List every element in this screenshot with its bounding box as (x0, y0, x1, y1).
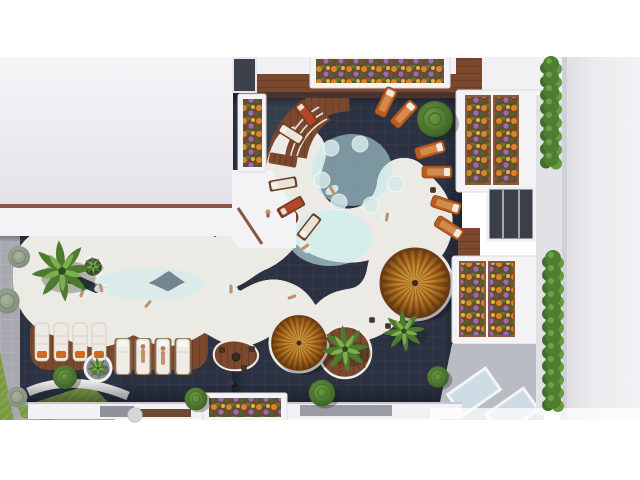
bush-sage (8, 246, 30, 268)
stone (128, 408, 142, 422)
left-fascia (0, 208, 240, 236)
planter-right-1a (466, 96, 490, 184)
right-wall (560, 57, 640, 433)
table-round (232, 353, 240, 361)
planter-flowers (316, 59, 444, 83)
lounger-white (35, 323, 49, 361)
stool-pool (323, 140, 339, 156)
lounger-orange (422, 166, 452, 178)
stool-dark (386, 324, 391, 329)
stool-dark (242, 366, 247, 371)
planter-flowers (243, 99, 262, 167)
stool-pool (314, 172, 330, 188)
top-margin (0, 0, 640, 57)
planter-flowers (209, 398, 281, 417)
person-lying (141, 344, 146, 363)
right-window (488, 188, 534, 240)
stool-pool (388, 176, 404, 192)
stool-dark (431, 188, 436, 193)
parapet-block-2 (300, 405, 392, 416)
left-window (233, 58, 256, 92)
stool-dark (220, 348, 225, 353)
planter-right-1b (494, 96, 518, 184)
planter-right-2a (460, 262, 485, 336)
person-lying (161, 346, 166, 365)
north-soffit (232, 92, 472, 98)
water-highlight-west (95, 268, 205, 300)
planter-left-edge (238, 94, 266, 172)
lounger-white (73, 323, 87, 361)
stool-pool (363, 197, 379, 213)
parapet-wood (137, 409, 191, 417)
lounger-tan (115, 338, 132, 375)
planter-right-2b (489, 262, 514, 336)
north-edge (232, 54, 472, 98)
stool-dark (250, 347, 255, 352)
aerial-resort-pool-render (0, 0, 640, 480)
render-canvas (0, 0, 640, 480)
left-roof (0, 56, 233, 207)
planter-north (310, 54, 450, 88)
bottom-fade (430, 408, 640, 434)
planter-south (203, 393, 287, 421)
umbrella (272, 316, 326, 370)
bush-sage (7, 387, 28, 408)
lounger-white (54, 323, 68, 361)
lounger-tan (175, 338, 192, 375)
stool-pool (331, 194, 347, 210)
left-building (0, 56, 296, 248)
umbrella (381, 249, 449, 317)
lounger-white (92, 323, 106, 361)
left-roof-trim (0, 204, 240, 208)
stool-pool (352, 136, 368, 152)
stool-dark (370, 318, 375, 323)
